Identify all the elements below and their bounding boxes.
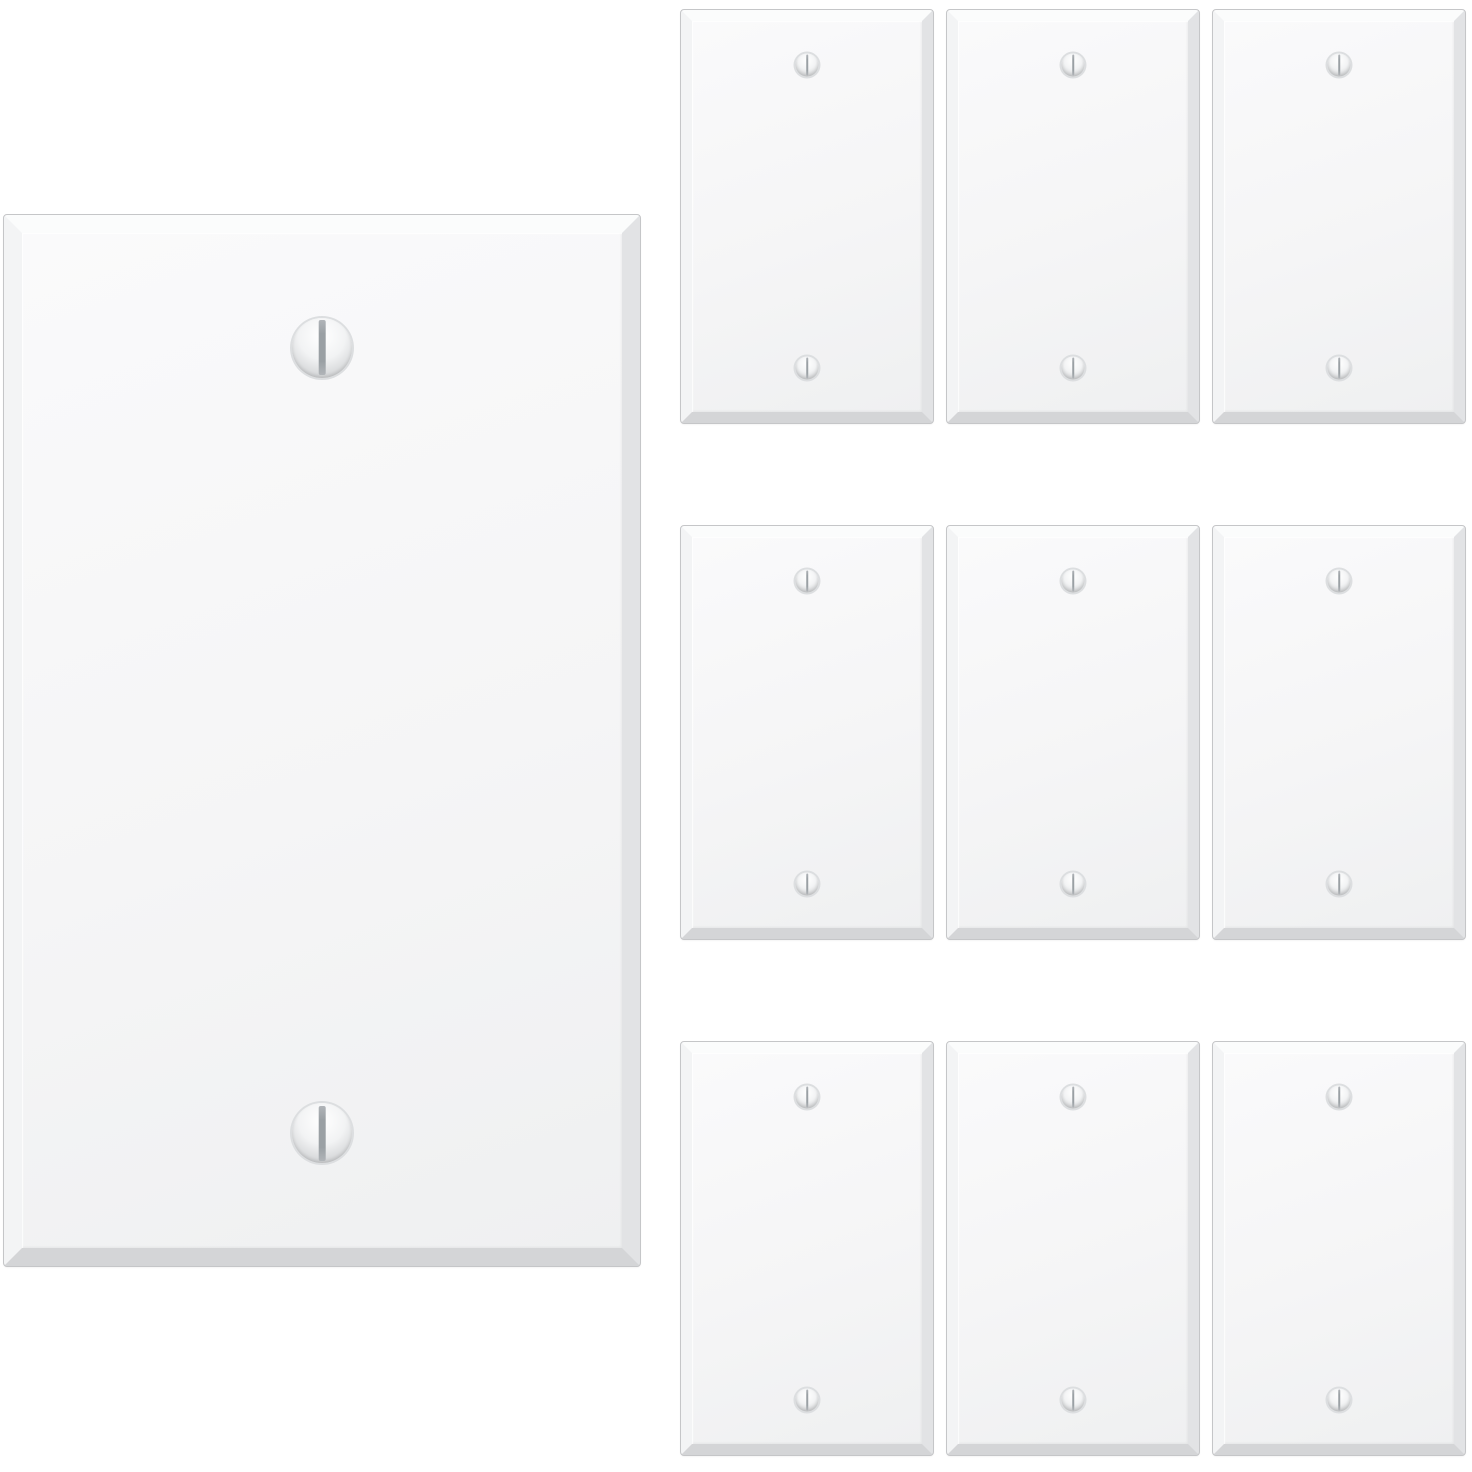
screw-slot: [806, 55, 809, 76]
plate-face: [692, 1053, 922, 1444]
screw-slot: [806, 357, 809, 378]
screw-slot: [1338, 1087, 1341, 1108]
screw-slot: [1072, 55, 1075, 76]
screw-top: [1328, 1086, 1351, 1109]
wall-plate: [681, 526, 933, 939]
screw-bottom: [796, 356, 819, 379]
screw-slot: [1072, 873, 1075, 894]
wall-plate: [1213, 10, 1465, 423]
wall-plate-large: [4, 215, 640, 1266]
screw-slot: [1338, 357, 1341, 378]
screw-bottom: [1328, 872, 1351, 895]
plate-face: [958, 1053, 1188, 1444]
screw-top: [796, 54, 819, 77]
plate-face: [692, 537, 922, 928]
screw-slot: [1072, 1389, 1075, 1410]
wall-plate: [681, 1042, 933, 1455]
screw-top: [1328, 54, 1351, 77]
screw-slot: [319, 320, 326, 375]
plate-face: [1224, 21, 1454, 412]
wall-plate: [1213, 1042, 1465, 1455]
plate-face: [958, 21, 1188, 412]
plate-grid: [681, 10, 1465, 1455]
plate-face: [692, 21, 922, 412]
screw-bottom: [796, 872, 819, 895]
screw-bottom: [796, 1388, 819, 1411]
wall-plate: [681, 10, 933, 423]
screw-bottom: [1328, 356, 1351, 379]
plate-face: [1224, 1053, 1454, 1444]
screw-top: [796, 570, 819, 593]
screw-top: [1062, 1086, 1085, 1109]
plate-face: [1224, 537, 1454, 928]
screw-slot: [1338, 873, 1341, 894]
wall-plate: [1213, 526, 1465, 939]
screw-slot: [319, 1106, 326, 1161]
plate-face: [958, 537, 1188, 928]
screw-top: [796, 1086, 819, 1109]
screw-slot: [1072, 1087, 1075, 1108]
wall-plate: [947, 10, 1199, 423]
screw-top: [1328, 570, 1351, 593]
plate-face: [22, 233, 622, 1248]
screw-bottom: [1328, 1388, 1351, 1411]
screw-top: [1062, 570, 1085, 593]
screw-slot: [806, 571, 809, 592]
screw-bottom: [1062, 1388, 1085, 1411]
wall-plate: [947, 526, 1199, 939]
screw-slot: [1072, 357, 1075, 378]
screw-slot: [806, 1389, 809, 1410]
screw-slot: [806, 873, 809, 894]
product-image: [0, 0, 1472, 1472]
screw-slot: [1072, 571, 1075, 592]
screw-top: [292, 318, 352, 378]
screw-slot: [1338, 55, 1341, 76]
screw-slot: [1338, 571, 1341, 592]
screw-bottom: [1062, 356, 1085, 379]
screw-slot: [806, 1087, 809, 1108]
screw-bottom: [1062, 872, 1085, 895]
screw-top: [1062, 54, 1085, 77]
wall-plate: [947, 1042, 1199, 1455]
screw-bottom: [292, 1103, 352, 1163]
screw-slot: [1338, 1389, 1341, 1410]
